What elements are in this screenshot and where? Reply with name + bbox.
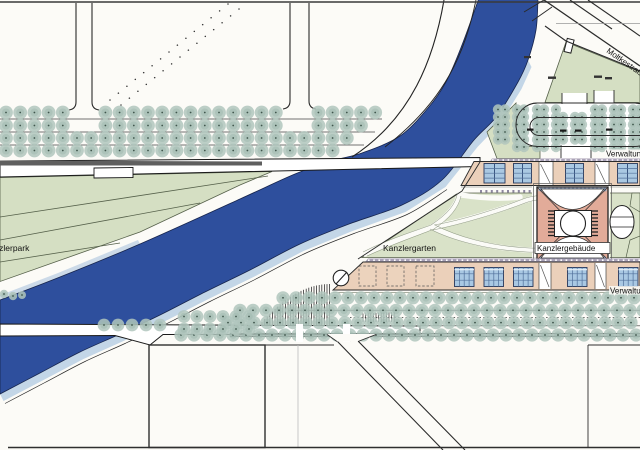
svg-text:Kanzlergebäude: Kanzlergebäude	[537, 244, 596, 253]
svg-text:Verwaltung: Verwaltung	[606, 150, 640, 159]
svg-text:Kanzlerpark: Kanzlerpark	[0, 243, 30, 253]
svg-text:Kanzlergarten: Kanzlergarten	[383, 243, 436, 253]
svg-text:Verwaltung: Verwaltung	[610, 287, 640, 296]
